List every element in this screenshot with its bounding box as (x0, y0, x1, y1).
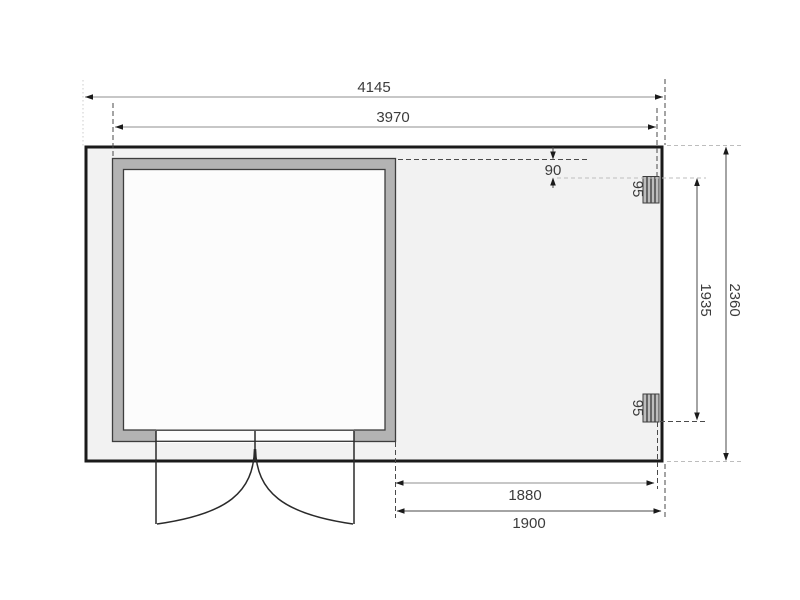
dim-shed-width: 3970 (115, 109, 656, 130)
dim-overall-depth-label: 2360 (726, 283, 743, 316)
dim-porch-width: 1900 (397, 508, 662, 532)
dim-overall-width: 4145 (85, 79, 663, 100)
dim-porch-width-label: 1900 (512, 515, 545, 532)
floor-plan-drawing: 4145 3970 90 95 95 1935 2360 1880 (0, 0, 800, 600)
floor-plan-page: 4145 3970 90 95 95 1935 2360 1880 (0, 0, 800, 600)
dim-post-span-label: 1935 (697, 283, 714, 316)
dim-post-top-label: 95 (629, 181, 646, 198)
dim-overall-width-label: 4145 (357, 79, 390, 96)
dim-overall-depth: 2360 (723, 147, 743, 462)
dim-porch-clear-width: 1880 (396, 480, 655, 504)
dim-post-bottom-label: 95 (629, 400, 646, 417)
dim-post-span: 1935 (694, 178, 714, 421)
dim-post-offset-label: 90 (545, 162, 562, 179)
dim-porch-clear-width-label: 1880 (508, 487, 541, 504)
shed-room (124, 170, 386, 431)
dim-shed-width-label: 3970 (376, 109, 409, 126)
